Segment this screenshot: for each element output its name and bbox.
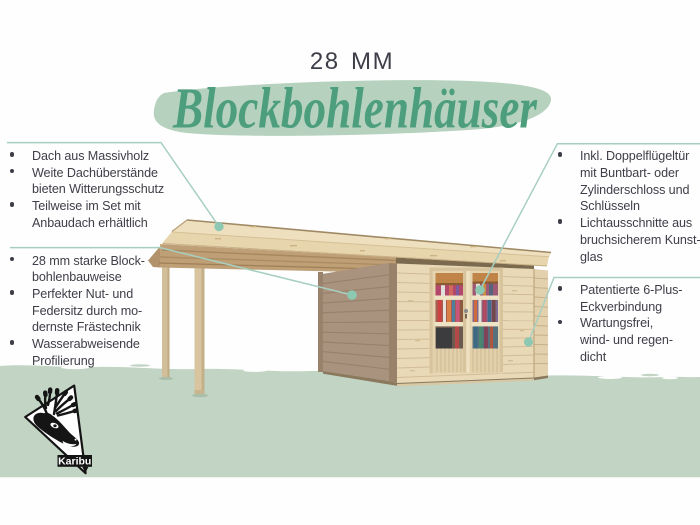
svg-text:Karibu: Karibu [58, 455, 91, 467]
svg-text:Blockbohlenhäuser: Blockbohlenhäuser [172, 76, 537, 141]
